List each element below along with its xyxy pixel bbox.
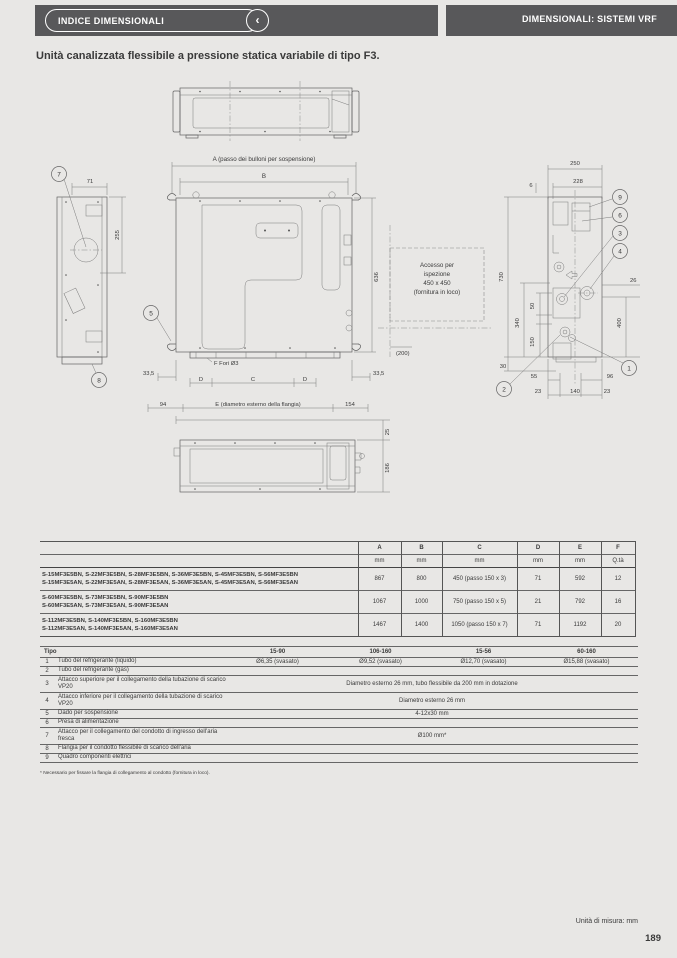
type-header: Tipo [40,647,226,658]
col-header-c: C [442,542,517,555]
row-number: 8 [40,745,54,754]
components-table: Tipo 15-90 106-160 15-56 60-160 1 Tubo d… [40,646,638,763]
bottom-view: 25 186 [174,416,391,492]
dim-26: 26 [630,278,636,284]
unit-a: mm [358,555,401,568]
dim-636: 636 [374,272,380,282]
col-header-a: A [358,542,401,555]
dim-250: 250 [570,161,580,167]
row-label: Quadro componenti elettrici [54,754,226,763]
list-item: 1 Tubo del refrigerante (liquido) Ø6,35 … [40,658,638,667]
list-item: 7 Attacco per il collegamento del condot… [40,728,638,745]
callout-8: 8 [97,378,101,385]
row-value: Ø12,70 (svasato) [432,658,535,667]
cell-b: 800 [401,568,442,591]
dim-150: 150 [530,337,536,347]
access-label-2: ispezione [424,271,451,278]
dim-33-5-right: 33,5 [373,371,384,377]
access-label-3: 450 x 450 [423,280,451,287]
row-label: Attacco per il collegamento del condotto… [54,728,226,745]
cell-c: 750 (passo 150 x 5) [442,591,517,614]
dim-e-label: E (diametro esterno della flangia) [215,402,300,408]
row-label: Tubo del refrigerante (liquido) [54,658,226,667]
dim-730: 730 [499,272,505,282]
cell-f: 16 [601,591,635,614]
callout-3: 3 [618,231,622,238]
row-value: 4-12x30 mm [226,710,638,719]
list-item: 6 Presa di alimentazione [40,719,638,728]
list-item: 3 Attacco superiore per il collegamento … [40,676,638,693]
row-number: 6 [40,719,54,728]
row-value [226,745,638,754]
unit-c: mm [442,555,517,568]
dim-55: 55 [531,374,537,380]
dim-23b: 23 [604,389,610,395]
unit-d: mm [517,555,559,568]
row-number: 1 [40,658,54,667]
access-label-1: Accesso per [420,262,454,269]
cell-f: 20 [601,614,635,637]
row-value [226,754,638,763]
dim-255: 255 [115,230,121,240]
range-header-4: 60-160 [535,647,638,658]
list-item: 8 Flangia per il condotto flessibile di … [40,745,638,754]
callout-6: 6 [618,213,622,220]
callout-2: 2 [502,387,506,394]
callout-7: 7 [57,172,61,179]
row-number: 7 [40,728,54,745]
cell-b: 1400 [401,614,442,637]
row-value: Ø15,88 (svasato) [535,658,638,667]
dim-71: 71 [87,179,93,185]
index-dimensionali-label: INDICE DIMENSIONALI [46,16,164,26]
row-value: Ø9,52 (svasato) [329,658,432,667]
range-header-2: 106-160 [329,647,432,658]
row-label: Presa di alimentazione [54,719,226,728]
page-number: 189 [645,933,661,944]
dim-b-label: B [262,173,266,180]
models-line: S-112MF3E5BN, S-140MF3E5BN, S-160MF3E5BN [42,617,358,625]
dim-186: 186 [385,463,391,473]
list-item: 4 Attacco inferiore per il collegamento … [40,693,638,710]
dim-d2: D [303,377,307,383]
front-view [173,81,359,141]
row-value [226,667,638,676]
row-label: Attacco superiore per il collegamento de… [54,676,226,693]
cell-e: 1192 [559,614,601,637]
row-number: 9 [40,754,54,763]
header-bar-right: DIMENSIONALI: SISTEMI VRF [446,5,677,36]
dim-228: 228 [573,179,583,185]
col-header-b: B [401,542,442,555]
cell-c: 1050 (passo 150 x 7) [442,614,517,637]
technical-drawing: 71 255 7 8 A (passo dei bulloni per sosp… [0,75,677,537]
cell-b: 1000 [401,591,442,614]
models-line: S-60MF3E5BN, S-73MF3E5BN, S-90MF3E5BN [42,594,358,602]
dim-6: 6 [529,183,532,189]
dim-c: C [251,377,255,383]
dim-a-label: A (passo dei bulloni per sospensione) [213,156,316,163]
cell-e: 792 [559,591,601,614]
cell-d: 71 [517,568,559,591]
unit-f: Q.tà [601,555,635,568]
unit-e: mm [559,555,601,568]
dim-140: 140 [570,389,580,395]
callout-9: 9 [618,195,622,202]
callout-4: 4 [618,249,622,256]
callout-1: 1 [627,366,631,373]
cell-d: 21 [517,591,559,614]
range-header-1: 15-90 [226,647,329,658]
models-line: S-15MF3E5BN, S-22MF3E5BN, S-28MF3E5BN, S… [42,571,358,579]
row-number: 4 [40,693,54,710]
footnote: * Necessario per fissare la flangia di c… [40,771,210,776]
models-line: S-112MF3E5AN, S-140MF3E5AN, S-160MF3E5AN [42,625,358,633]
table-row: S-112MF3E5BN, S-140MF3E5BN, S-160MF3E5BN… [40,614,635,637]
access-label-4: (fornitura in loco) [414,289,460,296]
list-item: 5 Dado per sospensione 4-12x30 mm [40,710,638,719]
row-value [226,719,638,728]
dim-94: 94 [160,402,167,408]
row-value: Diametro esterno 26 mm [226,693,638,710]
col-header-d: D [517,542,559,555]
models-line: S-60MF3E5AN, S-73MF3E5AN, S-90MF3E5AN [42,602,358,610]
dim-400: 400 [617,318,623,328]
page-title: Unità canalizzata flessibile a pressione… [36,50,380,62]
row-number: 5 [40,710,54,719]
cell-f: 12 [601,568,635,591]
dim-25: 25 [385,429,391,435]
dim-200: (200) [396,351,410,357]
cell-a: 1067 [358,591,401,614]
row-label: Tubo del refrigerante (gas) [54,667,226,676]
units-note: Unità di misura: mm [576,918,638,925]
cell-c: 450 (passo 150 x 3) [442,568,517,591]
row-number: 3 [40,676,54,693]
dim-50: 50 [530,303,536,309]
callout-5: 5 [149,311,153,318]
dim-30: 30 [500,364,506,370]
models-line: S-15MF3E5AN, S-22MF3E5AN, S-28MF3E5AN, S… [42,579,358,587]
dim-96: 96 [607,374,613,380]
dim-154: 154 [345,402,355,408]
section-title: DIMENSIONALI: SISTEMI VRF [522,14,657,24]
cell-d: 71 [517,614,559,637]
header-bar-left: INDICE DIMENSIONALI ‹ [35,5,438,36]
dim-23a: 23 [535,389,541,395]
dimensions-table: A B C D E F mm mm mm mm mm Q.tà S-15MF3E… [40,541,636,637]
row-number: 2 [40,667,54,676]
row-value: Ø100 mm* [226,728,638,745]
cell-e: 592 [559,568,601,591]
right-side-view: 250 228 6 730 30 340 50 150 [497,161,641,399]
holes-label: F Fori Ø3 [214,361,238,367]
cell-a: 867 [358,568,401,591]
dim-340: 340 [515,318,521,328]
dim-d1: D [199,377,203,383]
row-label: Flangia per il condotto flessibile di sc… [54,745,226,754]
row-label: Attacco inferiore per il collegamento de… [54,693,226,710]
cell-a: 1467 [358,614,401,637]
col-header-e: E [559,542,601,555]
dim-33-5-left: 33,5 [143,371,154,377]
list-item: 9 Quadro componenti elettrici [40,754,638,763]
unit-b: mm [401,555,442,568]
chevron-left-icon[interactable]: ‹ [246,9,269,32]
plan-view: A (passo dei bulloni per sospensione) B … [143,156,492,412]
col-header-f: F [601,542,635,555]
row-value: Diametro esterno 26 mm, tubo flessibile … [226,676,638,693]
index-dimensionali-tab[interactable]: INDICE DIMENSIONALI ‹ [45,9,259,32]
range-header-3: 15-56 [432,647,535,658]
table-row: S-15MF3E5BN, S-22MF3E5BN, S-28MF3E5BN, S… [40,568,635,591]
row-label: Dado per sospensione [54,710,226,719]
left-side-view: 71 255 7 8 [52,167,127,388]
list-item: 2 Tubo del refrigerante (gas) [40,667,638,676]
row-value: Ø6,35 (svasato) [226,658,329,667]
table-row: S-60MF3E5BN, S-73MF3E5BN, S-90MF3E5BN S-… [40,591,635,614]
